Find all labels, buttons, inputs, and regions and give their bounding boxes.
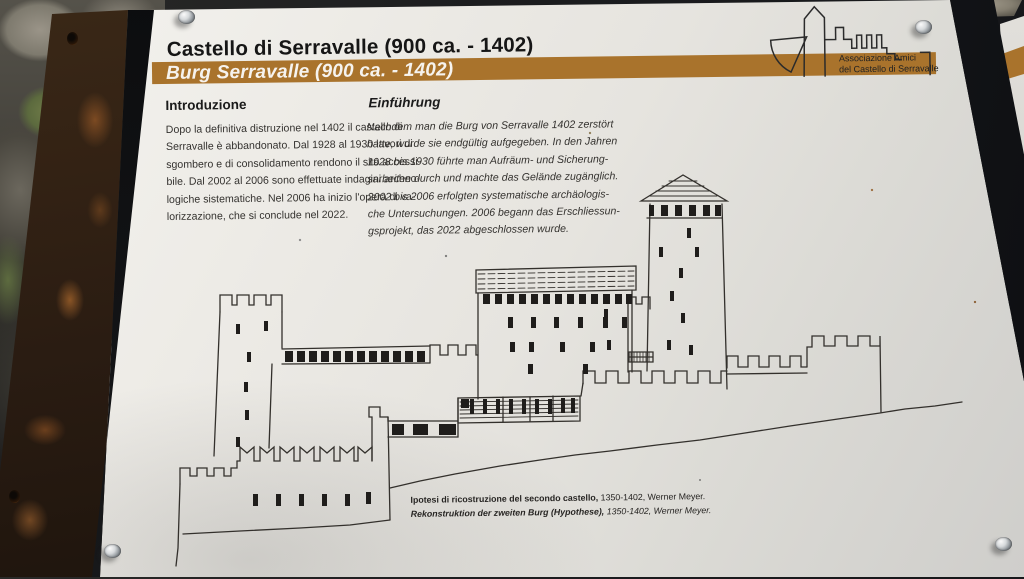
central-roof-hatch [478,271,634,289]
long-wall-open-battlement [430,345,478,363]
gallery-stripes [460,400,578,418]
logo-tower [803,7,825,77]
lower-building-slits [253,492,371,506]
keep-roof [641,175,727,201]
lower-building-left-edge [176,484,180,566]
logo-text-line1: Associazione Amici [839,52,916,63]
screw-bottom-left [104,544,121,558]
raised-wall-block [807,336,881,412]
central-machicolations [483,294,632,304]
right-wall-battlement [727,356,807,374]
section-heading-introduzione: Introduzione [165,97,246,113]
gallery-right-link [581,383,583,396]
screw-bottom-right [995,537,1012,551]
terrace-openings [392,424,456,435]
keep-slit-windows [659,228,699,355]
front-parapet [583,371,727,384]
bridge-hatch [631,352,649,362]
section-heading-einfuehrung: Einführung [368,94,440,110]
long-wall-merlons [285,351,425,362]
lower-building-right-edge [388,417,390,520]
castle-reconstruction-drawing [140,148,980,577]
photo-of-information-panel: { "colors": { "accent_brown": "#a9732c",… [0,0,1024,577]
screw-top-right [915,20,932,34]
screw-top-left [178,10,195,24]
left-tower-battlement [220,295,282,312]
post-hole-top [67,32,78,45]
swallowtail-parapet [237,447,372,461]
post-hole-bottom [9,490,20,503]
step-tower [369,407,388,461]
central-windows [508,309,627,374]
terrain-line [390,402,962,488]
logo-fan-wedge [771,37,807,72]
lower-building-bottom [183,520,390,534]
left-tower-slits [236,321,268,447]
association-logo: Associazione Amici del Castello di Serra… [759,0,955,92]
keep-top-openings [649,205,721,216]
panel-title-german: Burg Serravalle (900 ca. - 1402) [166,59,454,85]
logo-text-line2: del Castello di Serravalle [839,63,939,74]
left-wing-battlement [180,461,237,484]
